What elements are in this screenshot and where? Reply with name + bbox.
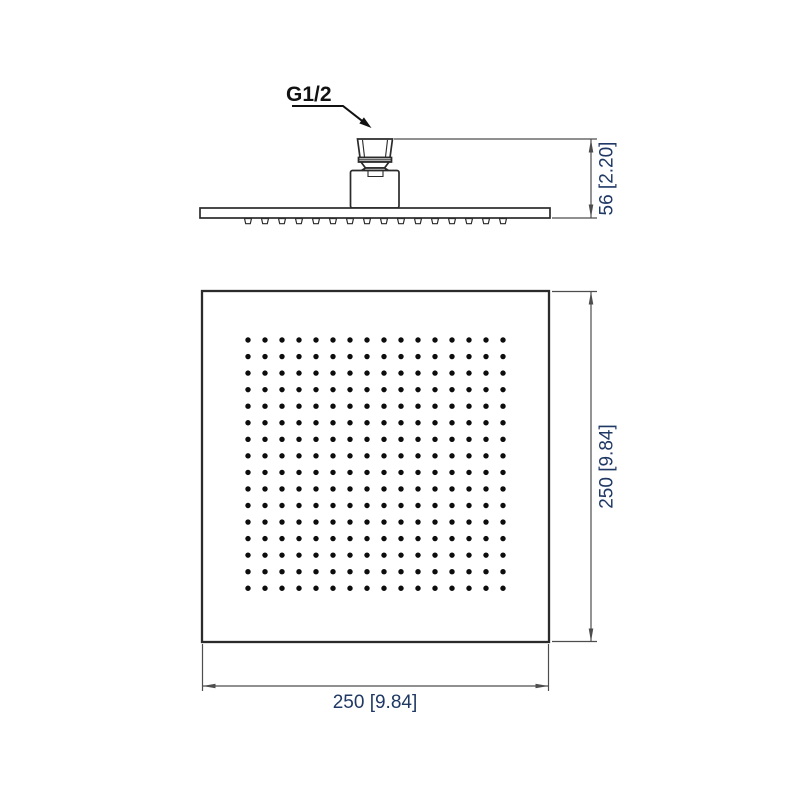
nozzle-dot	[296, 337, 301, 342]
nozzle-dot	[432, 586, 437, 591]
nozzle-dot	[500, 354, 505, 359]
nozzle-dot	[347, 437, 352, 442]
nozzle-dot	[381, 569, 386, 574]
nozzle-dot	[330, 420, 335, 425]
side-nozzle-bump	[279, 219, 286, 224]
nozzle-dot	[398, 486, 403, 491]
nozzle-dot	[398, 404, 403, 409]
nozzle-dot	[364, 420, 369, 425]
nozzle-dot	[262, 370, 267, 375]
nozzle-dot	[381, 337, 386, 342]
nozzle-dot	[483, 569, 488, 574]
nozzle-dot	[313, 519, 318, 524]
nozzle-dot	[330, 586, 335, 591]
nozzle-dot	[364, 437, 369, 442]
nozzle-dot	[483, 536, 488, 541]
nozzle-dot	[466, 503, 471, 508]
nozzle-dot	[432, 453, 437, 458]
nozzle-dot	[415, 420, 420, 425]
nozzle-dot	[347, 354, 352, 359]
nozzle-dot	[313, 470, 318, 475]
nozzle-dot	[500, 387, 505, 392]
nozzle-dot	[313, 337, 318, 342]
nozzle-dot	[483, 486, 488, 491]
nozzle-dot	[279, 536, 284, 541]
nozzle-dot	[381, 586, 386, 591]
side-nozzle-bump	[347, 219, 354, 224]
nozzle-dot	[466, 486, 471, 491]
front-width-dimension-label: 250 [9.84]	[333, 692, 418, 713]
nozzle-dot	[347, 370, 352, 375]
nozzle-dot	[262, 519, 267, 524]
nozzle-dot	[466, 404, 471, 409]
nozzle-dot	[500, 586, 505, 591]
nozzle-dot	[347, 503, 352, 508]
nozzle-dot	[415, 536, 420, 541]
nozzle-dot	[296, 387, 301, 392]
nozzle-dot	[398, 437, 403, 442]
nozzle-dot	[313, 552, 318, 557]
nozzle-dot	[449, 420, 454, 425]
nozzle-dot	[279, 404, 284, 409]
nozzle-dot	[398, 470, 403, 475]
nozzle-dot	[279, 586, 284, 591]
nozzle-dot	[262, 437, 267, 442]
nozzle-dot	[381, 387, 386, 392]
arrow-down-icon	[589, 205, 594, 218]
nozzle-dot	[381, 552, 386, 557]
nozzle-dot	[466, 420, 471, 425]
nozzle-dot	[449, 337, 454, 342]
nozzle-dot	[381, 470, 386, 475]
nozzle-dot	[279, 470, 284, 475]
nozzle-dot	[381, 536, 386, 541]
nozzle-dot	[313, 420, 318, 425]
nozzle-dot	[466, 519, 471, 524]
nozzle-dot	[483, 586, 488, 591]
nozzle-dot	[432, 470, 437, 475]
nozzle-dot	[449, 354, 454, 359]
nozzle-dot	[262, 569, 267, 574]
nozzle-dot	[415, 519, 420, 524]
nozzle-dot	[296, 420, 301, 425]
nozzle-dot	[483, 552, 488, 557]
nozzle-dot	[296, 569, 301, 574]
nozzle-dot	[432, 354, 437, 359]
nozzle-dot	[262, 404, 267, 409]
nozzle-dot	[262, 503, 267, 508]
nozzle-dot	[364, 453, 369, 458]
nozzle-dot	[500, 337, 505, 342]
side-nozzle-bump	[330, 219, 337, 224]
nozzle-dot	[364, 569, 369, 574]
nozzle-dot	[466, 387, 471, 392]
nozzle-dot	[296, 586, 301, 591]
callout-leader-line	[292, 106, 362, 121]
nozzle-dot	[466, 370, 471, 375]
nozzle-dot	[313, 569, 318, 574]
nozzle-dot	[296, 354, 301, 359]
nozzle-dot	[245, 354, 250, 359]
nozzle-dot	[415, 437, 420, 442]
nozzle-dot	[364, 552, 369, 557]
nozzle-dot	[296, 453, 301, 458]
nozzle-dot	[466, 337, 471, 342]
nozzle-dot	[449, 586, 454, 591]
nozzle-dot	[432, 387, 437, 392]
nozzle-dot	[313, 503, 318, 508]
nozzle-dot	[449, 503, 454, 508]
nozzle-dot	[313, 370, 318, 375]
nozzle-dot	[296, 370, 301, 375]
nozzle-dot	[449, 552, 454, 557]
nozzle-dot	[466, 552, 471, 557]
shower-plate-profile	[200, 208, 550, 218]
nozzle-dot	[296, 519, 301, 524]
nozzle-dot	[330, 486, 335, 491]
nozzle-dot	[432, 486, 437, 491]
side-nozzle-bump	[466, 219, 473, 224]
nozzle-dot	[381, 354, 386, 359]
nozzle-dot	[500, 370, 505, 375]
nozzle-dot	[313, 536, 318, 541]
nozzle-dot	[330, 536, 335, 541]
side-nozzle-bump	[381, 219, 388, 224]
nozzle-dot	[279, 519, 284, 524]
nozzle-dot	[330, 552, 335, 557]
nozzle-dot	[415, 470, 420, 475]
nozzle-dot	[398, 453, 403, 458]
nozzle-dot	[330, 503, 335, 508]
nozzle-dot	[245, 519, 250, 524]
drawing-canvas: G1/2 56 [2.20] 250 [9.84]	[0, 0, 800, 800]
nozzle-dot	[245, 470, 250, 475]
nozzle-dot	[347, 337, 352, 342]
nozzle-dot	[466, 354, 471, 359]
nozzle-dot	[245, 337, 250, 342]
nozzle-dot	[483, 420, 488, 425]
nozzle-dot	[432, 420, 437, 425]
side-nozzle-bump	[313, 219, 320, 224]
side-nozzle-bump	[245, 219, 252, 224]
nozzle-dot	[330, 370, 335, 375]
nozzle-dot	[347, 536, 352, 541]
nozzle-dot	[483, 337, 488, 342]
nozzle-dot	[330, 470, 335, 475]
nozzle-dot	[415, 387, 420, 392]
side-view: G1/2 56 [2.20]	[200, 83, 618, 224]
front-view: 250 [9.84] 250 [9.84]	[202, 291, 618, 713]
nozzle-dot	[483, 370, 488, 375]
nozzle-dot	[330, 569, 335, 574]
nozzle-dot	[279, 552, 284, 557]
arrow-up-icon	[589, 140, 594, 153]
side-height-dimension-label: 56 [2.20]	[597, 142, 618, 216]
nozzle-dot	[398, 519, 403, 524]
nozzle-dot	[415, 486, 420, 491]
nozzle-dot	[262, 420, 267, 425]
nozzle-dot	[262, 453, 267, 458]
nozzle-dot	[398, 569, 403, 574]
nozzle-dot	[449, 453, 454, 458]
nozzle-dot	[466, 586, 471, 591]
nozzle-dot	[466, 536, 471, 541]
nozzle-dot	[296, 536, 301, 541]
nozzle-dot	[398, 370, 403, 375]
nozzle-dot	[483, 354, 488, 359]
nozzle-dot	[296, 552, 301, 557]
nozzle-dot	[432, 337, 437, 342]
nozzle-dot	[364, 470, 369, 475]
nozzle-dot	[381, 370, 386, 375]
nozzle-dot	[364, 354, 369, 359]
nozzle-dot	[296, 470, 301, 475]
nozzle-dot	[398, 552, 403, 557]
nozzle-dot	[415, 453, 420, 458]
nozzle-dot	[381, 453, 386, 458]
nozzle-dot	[296, 503, 301, 508]
nozzle-dot	[364, 586, 369, 591]
nozzle-dot	[398, 503, 403, 508]
nozzle-dot	[500, 536, 505, 541]
nozzle-dot	[500, 552, 505, 557]
nozzle-dot	[415, 569, 420, 574]
nozzle-dot	[381, 503, 386, 508]
nozzle-dot	[262, 470, 267, 475]
nozzle-dot	[245, 569, 250, 574]
inlet-connector	[351, 139, 400, 208]
nozzle-dot	[500, 569, 505, 574]
nozzle-dot	[483, 387, 488, 392]
nozzle-dot	[330, 453, 335, 458]
nozzle-dot	[449, 437, 454, 442]
front-height-dimension-label: 250 [9.84]	[597, 424, 618, 509]
nozzle-dot	[449, 569, 454, 574]
nozzle-dot	[262, 486, 267, 491]
nozzle-dot	[483, 503, 488, 508]
nozzle-dot	[483, 470, 488, 475]
nozzle-dot	[364, 519, 369, 524]
side-nozzle-bump	[398, 219, 405, 224]
connector-waist	[361, 162, 389, 168]
technical-drawing: G1/2 56 [2.20] 250 [9.84]	[0, 0, 800, 800]
nozzle-dot	[262, 536, 267, 541]
nozzle-dot	[432, 519, 437, 524]
nozzle-dot	[364, 370, 369, 375]
nozzle-dot	[432, 370, 437, 375]
nozzle-dot	[398, 586, 403, 591]
nozzle-dot	[500, 503, 505, 508]
arrow-right-icon	[536, 684, 549, 689]
nozzle-dot	[245, 486, 250, 491]
nozzle-dot	[262, 586, 267, 591]
nozzle-dot	[279, 387, 284, 392]
nozzle-dot	[432, 536, 437, 541]
nozzle-dot	[466, 569, 471, 574]
nozzle-dot	[347, 519, 352, 524]
arrow-left-icon	[203, 684, 216, 689]
nozzle-dot	[347, 569, 352, 574]
front-width-dimension: 250 [9.84]	[203, 644, 549, 713]
nozzle-dot	[381, 420, 386, 425]
nozzle-dot	[245, 387, 250, 392]
nozzle-dot	[296, 437, 301, 442]
nozzle-dot	[330, 404, 335, 409]
nozzle-dot	[279, 486, 284, 491]
nozzle-dot	[415, 586, 420, 591]
nozzle-dot	[381, 486, 386, 491]
nozzle-dot	[466, 453, 471, 458]
nozzle-dot	[279, 420, 284, 425]
nozzle-dot	[483, 404, 488, 409]
nozzle-dot	[466, 437, 471, 442]
nozzle-dot	[364, 486, 369, 491]
side-nozzle-bump	[432, 219, 439, 224]
nozzle-dot	[500, 470, 505, 475]
nozzle-dot	[364, 503, 369, 508]
side-nozzle-bump	[500, 219, 507, 224]
nozzle-dot	[330, 519, 335, 524]
nozzle-dot	[245, 453, 250, 458]
nozzle-dot	[432, 503, 437, 508]
nozzle-dot	[262, 337, 267, 342]
nozzle-dot	[449, 470, 454, 475]
nozzle-dot	[330, 337, 335, 342]
shower-plate-face	[202, 291, 549, 642]
nozzle-dot	[381, 437, 386, 442]
nozzle-dot	[347, 552, 352, 557]
nozzle-dot	[449, 536, 454, 541]
nozzle-dot	[466, 470, 471, 475]
nozzle-dot	[347, 453, 352, 458]
nozzle-dot	[415, 552, 420, 557]
nozzle-dot	[245, 420, 250, 425]
nozzle-dot	[279, 337, 284, 342]
nozzle-dot	[296, 404, 301, 409]
nozzle-dot	[415, 503, 420, 508]
front-height-dimension: 250 [9.84]	[552, 292, 618, 642]
nozzle-dot	[500, 453, 505, 458]
nozzle-dot	[262, 552, 267, 557]
nozzle-dot	[449, 404, 454, 409]
thread-size-label: G1/2	[286, 83, 332, 106]
nozzle-dot	[432, 569, 437, 574]
nozzle-dot	[347, 387, 352, 392]
nozzle-dot	[381, 404, 386, 409]
nozzle-dot	[449, 519, 454, 524]
side-nozzle-bump	[262, 219, 269, 224]
nozzle-dot	[398, 420, 403, 425]
nozzle-dot	[398, 387, 403, 392]
nozzle-dot	[245, 437, 250, 442]
nozzle-dot	[381, 519, 386, 524]
nozzle-dot	[483, 437, 488, 442]
nozzle-dot	[449, 387, 454, 392]
nozzle-dot	[364, 404, 369, 409]
side-nozzle-bump	[364, 219, 371, 224]
nozzle-dot	[500, 519, 505, 524]
nozzle-dot	[398, 337, 403, 342]
nozzle-dot	[500, 437, 505, 442]
nozzle-dot	[347, 420, 352, 425]
nozzle-dot	[500, 486, 505, 491]
nozzle-dot	[415, 354, 420, 359]
nozzle-dot	[313, 453, 318, 458]
nozzle-dot	[500, 420, 505, 425]
nozzle-dot	[330, 437, 335, 442]
side-nozzle-bump	[415, 219, 422, 224]
side-nozzle-bump	[296, 219, 303, 224]
nozzle-dot	[432, 437, 437, 442]
nozzle-dot	[279, 370, 284, 375]
arrow-down-icon	[589, 629, 594, 642]
nozzle-dot	[245, 552, 250, 557]
side-nozzle-row	[245, 219, 507, 224]
nozzle-dot	[245, 404, 250, 409]
nozzle-dot	[432, 552, 437, 557]
nozzle-dot	[347, 404, 352, 409]
nozzle-dot	[500, 404, 505, 409]
nozzle-dot	[279, 503, 284, 508]
nozzle-dot	[313, 354, 318, 359]
arrow-up-icon	[589, 292, 594, 305]
nozzle-dot	[279, 354, 284, 359]
nozzle-dot	[262, 354, 267, 359]
nozzle-dot	[415, 370, 420, 375]
nozzle-dot	[313, 437, 318, 442]
nozzle-dot	[330, 387, 335, 392]
nozzle-dot	[398, 536, 403, 541]
nozzle-dot	[245, 536, 250, 541]
nozzle-dot	[245, 370, 250, 375]
nozzle-dot	[262, 387, 267, 392]
nozzle-dot	[483, 519, 488, 524]
nozzle-dot	[245, 503, 250, 508]
nozzle-dot	[347, 486, 352, 491]
nozzle-dot	[364, 536, 369, 541]
nozzle-dot	[398, 354, 403, 359]
nozzle-dot	[449, 370, 454, 375]
thread-callout: G1/2	[286, 83, 372, 128]
nozzle-dot	[415, 337, 420, 342]
side-nozzle-bump	[449, 219, 456, 224]
nozzle-dot	[483, 453, 488, 458]
nozzle-dot	[245, 586, 250, 591]
nozzle-dot	[330, 354, 335, 359]
nozzle-dot	[313, 586, 318, 591]
nozzle-dot	[415, 404, 420, 409]
side-height-dimension: 56 [2.20]	[552, 140, 618, 219]
nozzle-dot	[279, 453, 284, 458]
nozzle-dot	[347, 586, 352, 591]
nozzle-dot	[296, 486, 301, 491]
nozzle-dot	[279, 437, 284, 442]
nozzle-dot	[364, 387, 369, 392]
side-nozzle-bump	[483, 219, 490, 224]
nozzle-dot	[313, 387, 318, 392]
nozzle-dot	[347, 470, 352, 475]
nozzle-dot	[364, 337, 369, 342]
nozzle-dot	[279, 569, 284, 574]
nozzle-dot	[449, 486, 454, 491]
nozzle-dot	[432, 404, 437, 409]
nozzle-dot	[313, 486, 318, 491]
nozzle-dot	[313, 404, 318, 409]
